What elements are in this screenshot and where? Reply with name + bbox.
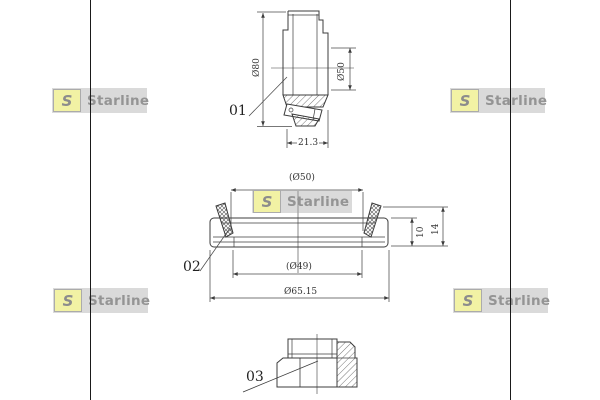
bearing-width-label: 21.3 [297,138,319,148]
technical-drawing-sheet: Ø80 Ø50 21.3 01 (Ø50) (Ø49) Ø65.15 10 14… [0,0,600,400]
bearing-part-number: 01 [229,103,247,119]
bearing-outer-diameter-label: Ø80 [252,58,262,77]
seal-total-height-label: 14 [431,224,441,235]
starline-brand-text: Starline [483,293,555,309]
seal-lip-diameter-label: (Ø50) [289,173,315,183]
starline-logo-icon: S [454,289,482,312]
leader-line-02 [200,228,230,271]
left-rule-line [90,0,91,400]
starline-watermark-center: S Starline [252,190,352,213]
leader-line-01 [249,77,287,116]
starline-watermark-top-right: S Starline [450,88,545,113]
seal-lip-left [216,203,233,237]
starline-logo-icon: S [253,190,281,213]
nut-hex-body [277,358,337,387]
seal-part-number: 02 [183,259,201,275]
bearing-outline-right [288,11,328,95]
starline-watermark-top-left: S Starline [52,88,147,113]
starline-watermark-bottom-left: S Starline [53,288,148,313]
seal-shell [210,218,388,247]
starline-watermark-bottom-right: S Starline [453,288,548,313]
starline-brand-text: Starline [282,194,354,210]
bearing-outline-left [283,11,288,95]
nut-drawing [243,334,357,394]
starline-brand-text: Starline [83,293,155,309]
starline-brand-text: Starline [82,93,154,109]
nut-part-number: 03 [246,369,264,385]
bearing-bore-diameter-label: Ø50 [337,62,347,81]
starline-logo-icon: S [54,289,82,312]
seal-lip-right [364,203,381,237]
seal-inner-diameter-label: (Ø49) [286,262,312,272]
starline-logo-icon: S [53,89,81,112]
starline-brand-text: Starline [480,93,552,109]
starline-logo-icon: S [451,89,479,112]
right-rule-line [510,0,511,400]
seal-outer-diameter-label: Ø65.15 [284,287,317,297]
seal-insert-height-label: 10 [416,227,426,238]
nut-cap [288,339,337,358]
nut-section [337,342,357,387]
